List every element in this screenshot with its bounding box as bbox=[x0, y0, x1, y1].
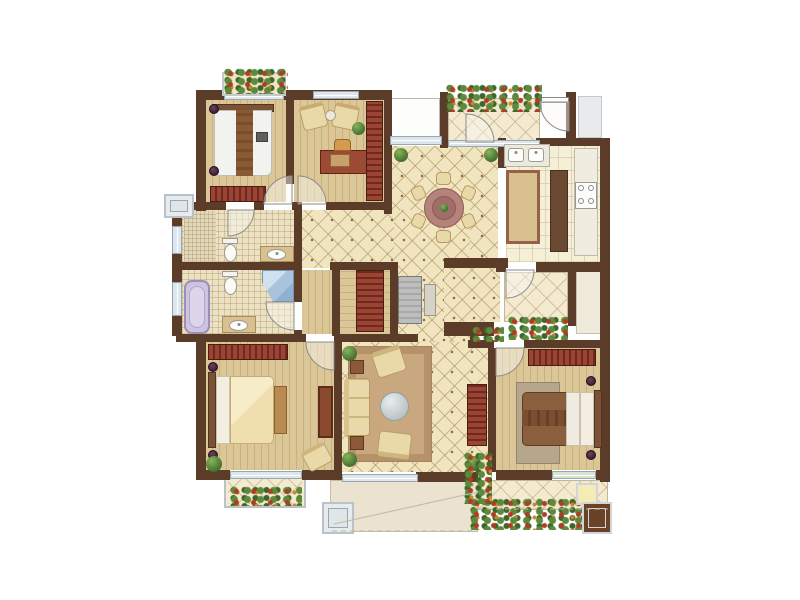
bed-runner bbox=[236, 110, 253, 176]
plant bbox=[342, 452, 357, 467]
bedside-lamp bbox=[208, 362, 218, 372]
side-table bbox=[350, 436, 364, 450]
console-table bbox=[398, 276, 422, 324]
bed-bench bbox=[274, 386, 287, 434]
column-ornament bbox=[582, 502, 612, 534]
wall bbox=[176, 262, 294, 270]
plant bbox=[352, 122, 365, 135]
wardrobe bbox=[208, 344, 288, 360]
stove-burner bbox=[588, 185, 594, 191]
study-window bbox=[313, 91, 359, 99]
desk-chair bbox=[334, 139, 351, 151]
sideboard bbox=[467, 384, 487, 446]
wall bbox=[334, 342, 342, 480]
wardrobe bbox=[210, 186, 266, 202]
bookcase bbox=[366, 101, 383, 201]
wall bbox=[196, 342, 206, 478]
column-ornament bbox=[164, 194, 194, 218]
bed-runner bbox=[522, 410, 566, 426]
window bbox=[172, 226, 182, 254]
dining-north-window bbox=[390, 136, 442, 145]
coffee-table bbox=[380, 392, 409, 421]
sink-basin bbox=[508, 148, 524, 162]
plant bbox=[342, 346, 357, 361]
column-ornament bbox=[322, 502, 354, 534]
bedside-lamp bbox=[586, 450, 596, 460]
floor-plan bbox=[0, 0, 800, 600]
wall bbox=[176, 334, 306, 342]
bedside-lamp bbox=[586, 376, 596, 386]
bedroom-right-balcony-door bbox=[552, 471, 596, 479]
entry-door-leaf bbox=[540, 97, 569, 103]
wall bbox=[600, 138, 610, 270]
wall bbox=[384, 98, 392, 214]
hall-nook-floor bbox=[302, 270, 332, 334]
wall bbox=[496, 258, 506, 272]
wall bbox=[390, 262, 398, 342]
pocket-flower-bed bbox=[470, 326, 504, 342]
master-balcony-door-glass bbox=[230, 471, 302, 479]
console-tray bbox=[424, 284, 436, 316]
entry-side-platform bbox=[578, 96, 602, 138]
wash-basin bbox=[229, 320, 248, 331]
wall bbox=[294, 202, 302, 302]
dining-chair bbox=[436, 230, 451, 243]
rear-balcony-tall-plants bbox=[462, 452, 492, 504]
sink-basin bbox=[528, 148, 544, 162]
stove-burner bbox=[578, 185, 584, 191]
bedside-lamp bbox=[209, 166, 219, 176]
wall bbox=[496, 470, 552, 480]
pillows bbox=[216, 376, 230, 444]
wall bbox=[326, 202, 392, 210]
stove-burner bbox=[588, 198, 594, 204]
flower-box-plants bbox=[222, 68, 288, 94]
sofa bbox=[344, 378, 370, 436]
living-sliding-door-glass bbox=[342, 474, 418, 482]
toilet-bowl bbox=[224, 277, 237, 295]
ac-platform bbox=[388, 98, 440, 140]
corridor-east-pocket-floor bbox=[444, 268, 500, 322]
side-platform bbox=[576, 268, 602, 334]
storage-cabinet bbox=[356, 270, 384, 332]
entrance-door-arc bbox=[540, 102, 569, 131]
bed-sheet-fold bbox=[566, 392, 580, 446]
side-table bbox=[350, 360, 364, 374]
pillows bbox=[580, 392, 594, 446]
service-balcony-floor bbox=[504, 272, 568, 322]
tall-cabinet bbox=[550, 170, 568, 252]
kitchen-island bbox=[506, 170, 540, 244]
stove-burner bbox=[578, 198, 584, 204]
bedside-lamp bbox=[209, 104, 219, 114]
plant bbox=[206, 456, 222, 472]
wall bbox=[600, 270, 610, 482]
left-balcony-flowers bbox=[228, 486, 302, 506]
corridor-west-floor bbox=[302, 210, 394, 268]
plant bbox=[394, 148, 408, 162]
wall bbox=[254, 202, 264, 210]
tea-table bbox=[325, 110, 336, 121]
bed-headboard bbox=[208, 372, 216, 448]
wall bbox=[524, 340, 608, 348]
wash-basin bbox=[267, 249, 286, 260]
bed-headboard bbox=[594, 390, 602, 448]
entry-balcony-planting bbox=[444, 84, 542, 112]
toilet-bowl bbox=[224, 244, 237, 262]
desk-blotter bbox=[330, 154, 350, 167]
table-centerpiece bbox=[440, 204, 448, 212]
wall bbox=[172, 316, 182, 336]
shower-zone bbox=[184, 211, 216, 261]
plant bbox=[484, 148, 498, 162]
wall bbox=[302, 470, 342, 480]
folded-blanket bbox=[256, 132, 268, 142]
window bbox=[172, 282, 182, 316]
wall bbox=[334, 334, 418, 342]
dining-chair bbox=[436, 172, 451, 185]
wardrobe bbox=[528, 349, 596, 366]
dresser bbox=[318, 386, 333, 438]
wall bbox=[568, 262, 576, 326]
wall bbox=[596, 470, 610, 480]
service-balcony-flower-bed bbox=[506, 316, 568, 340]
armchair bbox=[377, 430, 413, 460]
bathtub-inner bbox=[189, 286, 205, 328]
wall bbox=[332, 262, 340, 336]
wall bbox=[286, 98, 294, 184]
wall bbox=[330, 262, 398, 270]
double-bed bbox=[230, 376, 274, 444]
wall bbox=[196, 90, 206, 212]
